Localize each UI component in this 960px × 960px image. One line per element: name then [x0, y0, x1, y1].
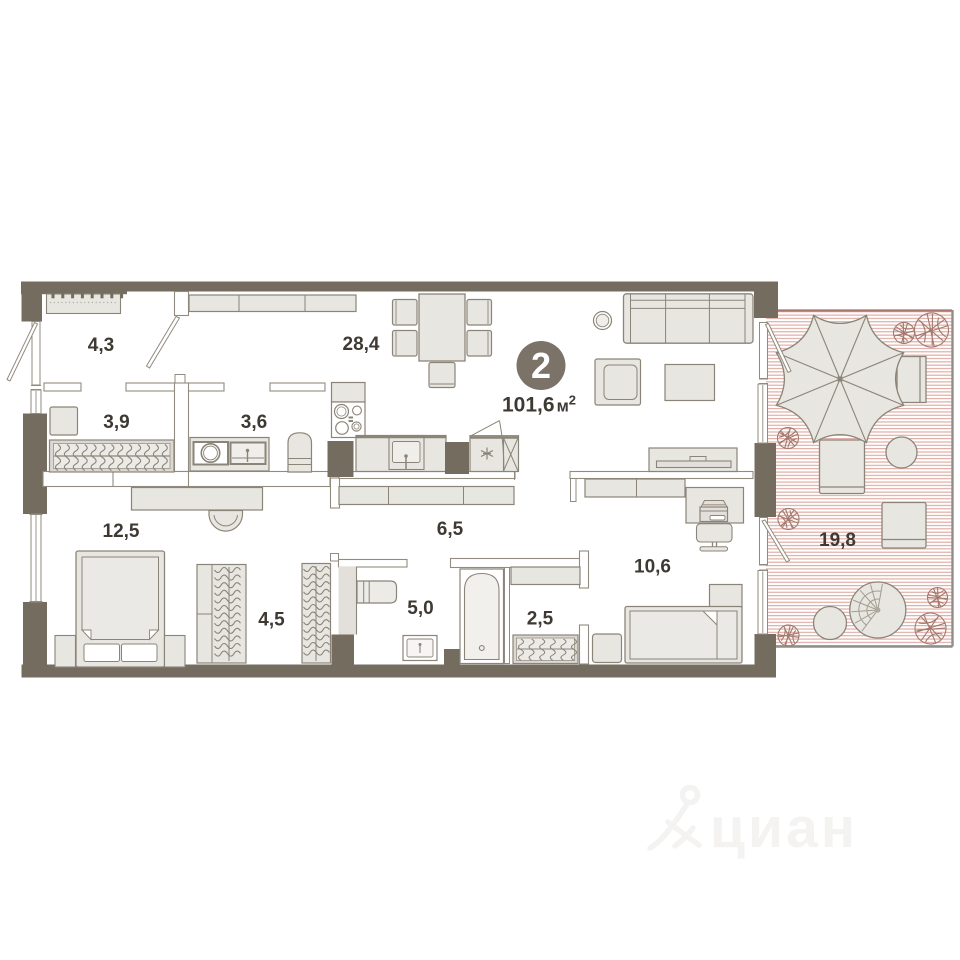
svg-text:19,8: 19,8 [819, 530, 856, 551]
svg-text:4,5: 4,5 [258, 610, 285, 631]
svg-text:28,4: 28,4 [343, 334, 380, 355]
svg-text:10,6: 10,6 [634, 557, 671, 578]
svg-text:12,5: 12,5 [103, 521, 140, 542]
svg-text:3,6: 3,6 [241, 412, 267, 433]
svg-text:4,3: 4,3 [88, 335, 114, 356]
svg-text:2,5: 2,5 [527, 609, 554, 630]
svg-text:циан: циан [710, 796, 858, 860]
svg-text:5,0: 5,0 [407, 598, 433, 619]
svg-text:6,5: 6,5 [437, 519, 464, 540]
svg-text:2: 2 [531, 345, 551, 386]
svg-text:3,9: 3,9 [103, 412, 129, 433]
